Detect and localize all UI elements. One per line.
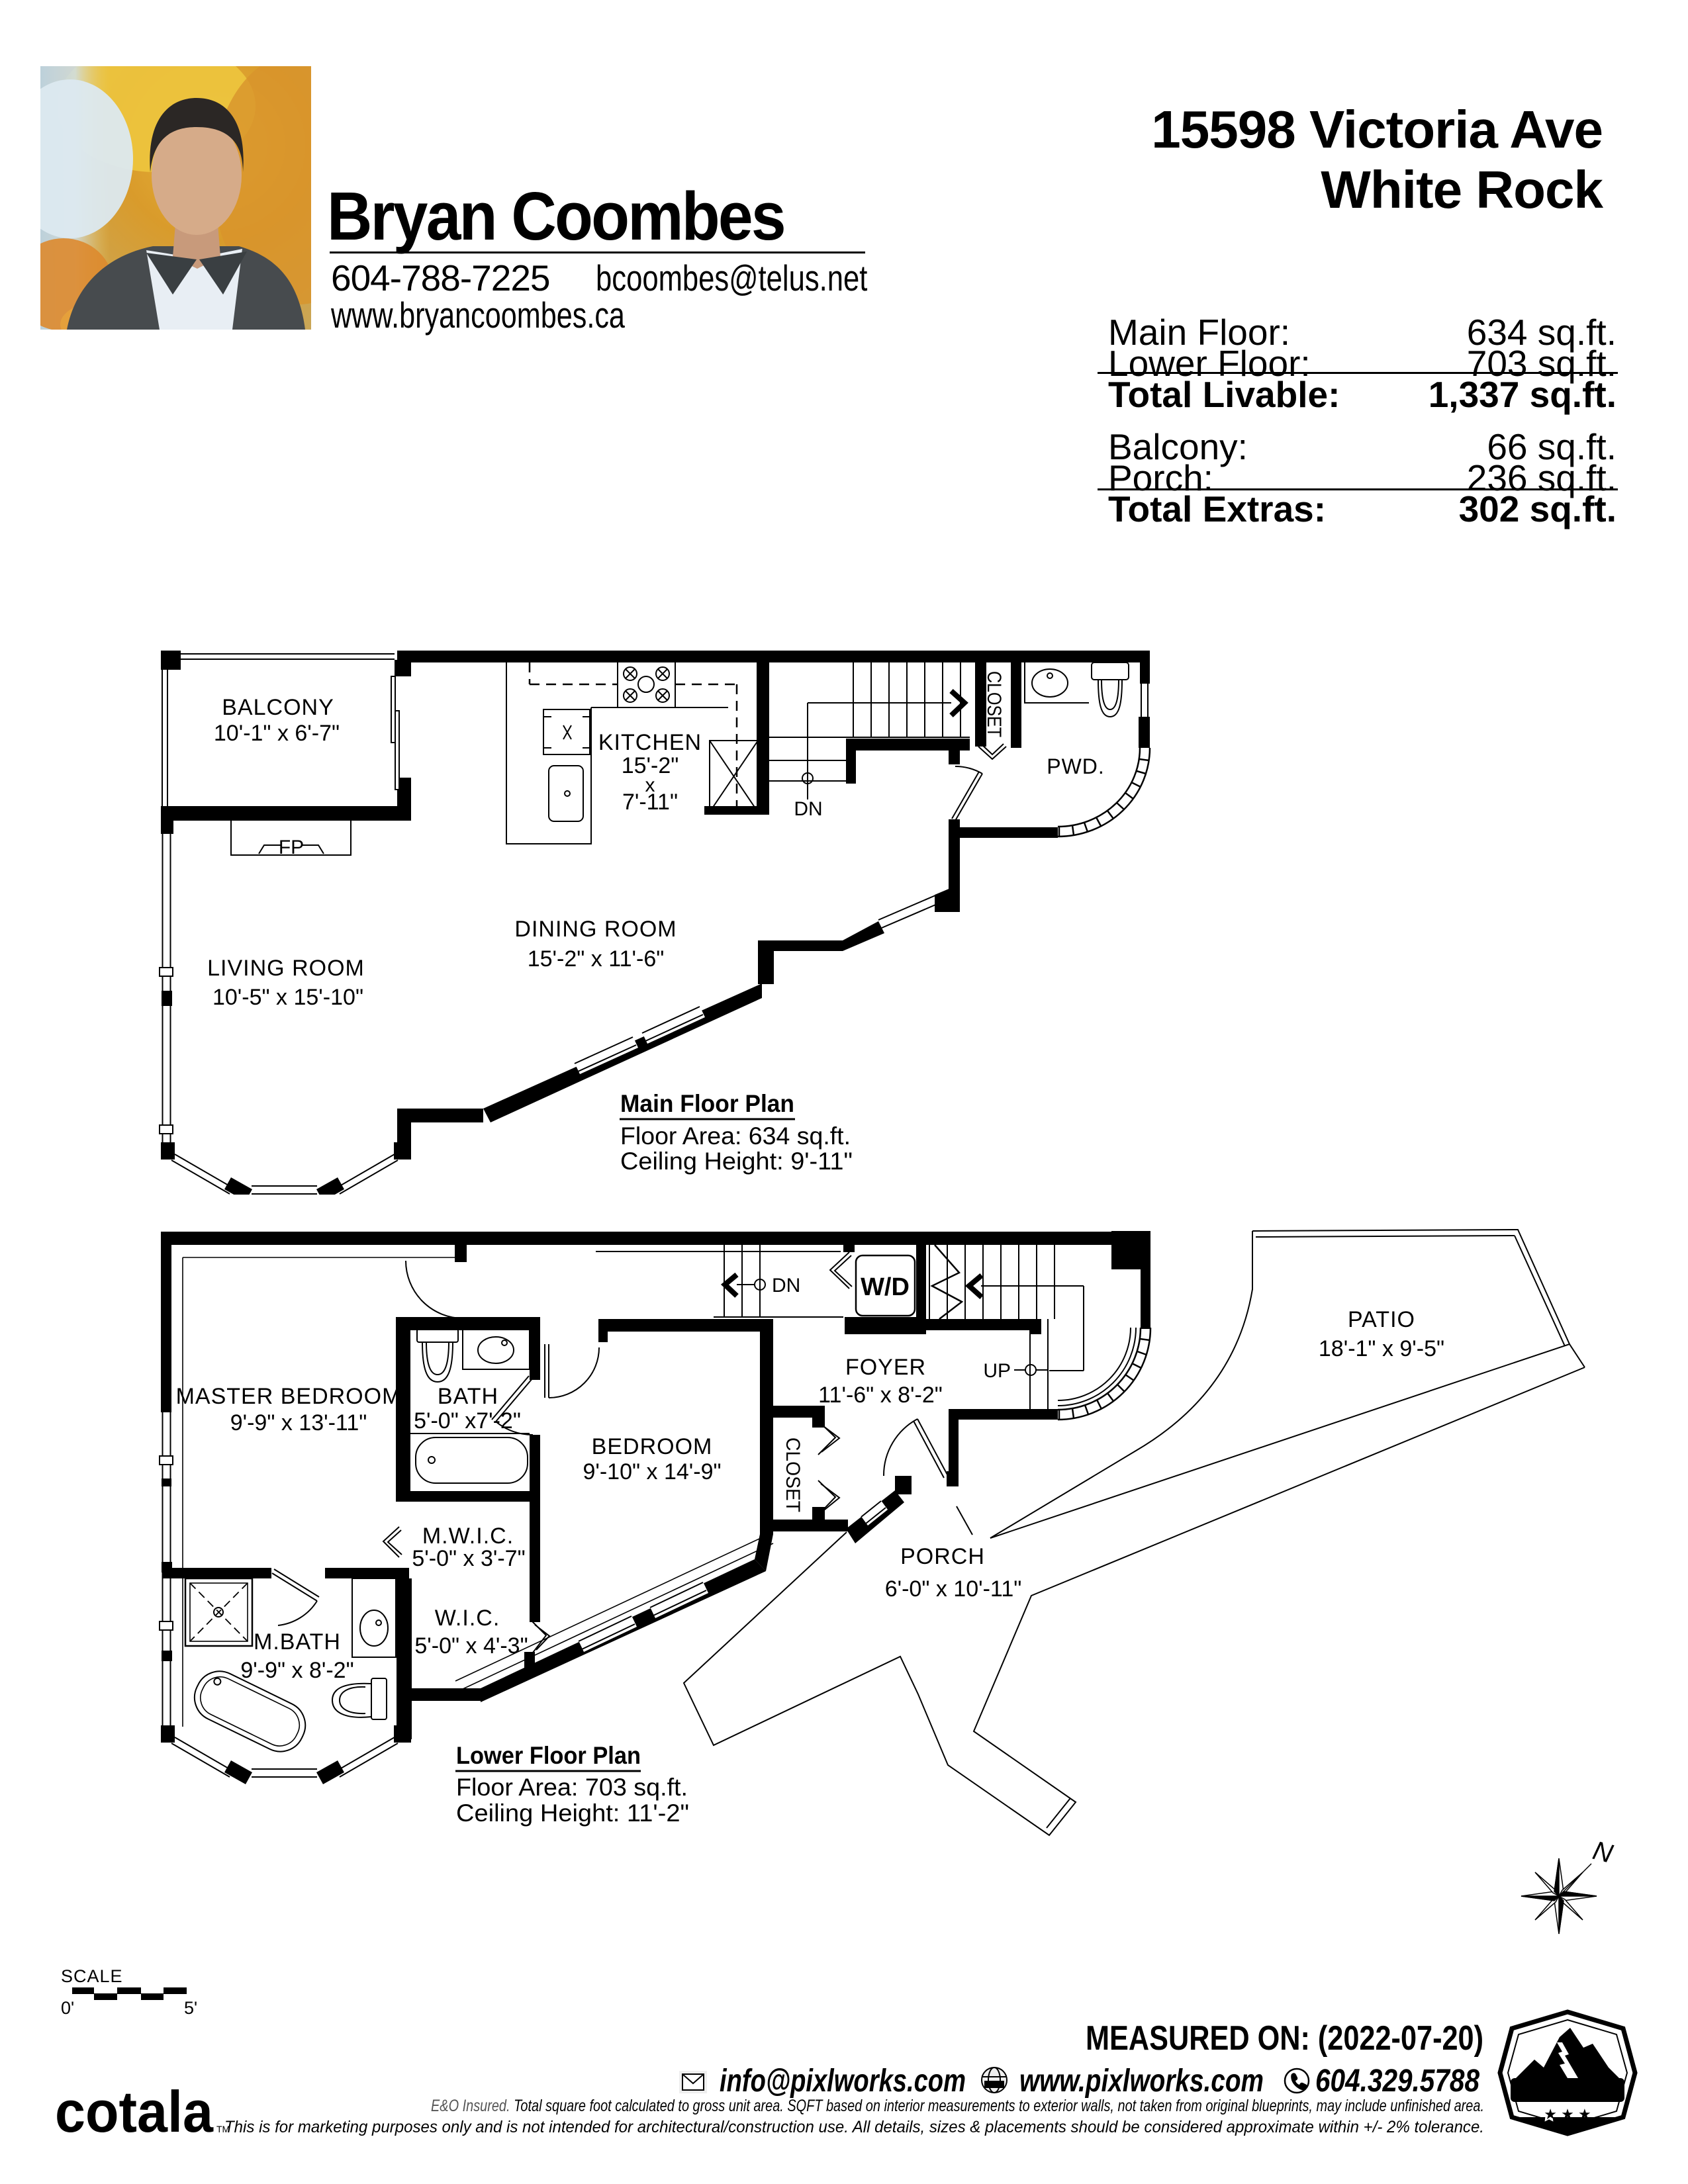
svg-text:Main Floor Plan: Main Floor Plan: [620, 1090, 794, 1117]
svg-text:PWD.: PWD.: [1047, 754, 1105, 778]
svg-text:DN: DN: [772, 1275, 800, 1297]
svg-text:www.pixlworks.com: www.pixlworks.com: [1019, 2064, 1264, 2099]
svg-text:FP: FP: [279, 837, 304, 858]
svg-text:Floor Area: 703 sq.ft.: Floor Area: 703 sq.ft.: [456, 1774, 688, 1801]
svg-text:5'-0" x 3'-7": 5'-0" x 3'-7": [412, 1546, 525, 1571]
svg-text:M.W.I.C.: M.W.I.C.: [422, 1524, 514, 1549]
svg-text:PATIO: PATIO: [1348, 1307, 1415, 1332]
svg-text:PixlWorks: PixlWorks: [1520, 2079, 1616, 2101]
svg-text:11'-6" x 8'-2": 11'-6" x 8'-2": [818, 1383, 943, 1408]
svg-text:9'-10" x 14'-9": 9'-10" x 14'-9": [583, 1459, 721, 1484]
svg-text:18'-1" x 9'-5": 18'-1" x 9'-5": [1319, 1336, 1444, 1361]
svg-text:★ ★ ★: ★ ★ ★: [1544, 2106, 1591, 2122]
svg-text:10'-5" x 15'-10": 10'-5" x 15'-10": [212, 985, 363, 1010]
svg-text:CLOSET: CLOSET: [983, 671, 1005, 737]
svg-text:9'-9" x 13'-11": 9'-9" x 13'-11": [230, 1410, 367, 1435]
svg-text:DINING ROOM: DINING ROOM: [514, 917, 677, 942]
svg-text:PORCH: PORCH: [900, 1544, 985, 1569]
svg-text:cotala: cotala: [55, 2079, 214, 2144]
svg-text:Floor Area: 634 sq.ft.: Floor Area: 634 sq.ft.: [620, 1122, 851, 1150]
svg-text:W/D: W/D: [861, 1273, 910, 1301]
svg-text:BALCONY: BALCONY: [222, 695, 334, 720]
svg-text:W.I.C.: W.I.C.: [435, 1606, 500, 1631]
svg-text:info@pixlworks.com: info@pixlworks.com: [720, 2064, 966, 2099]
svg-text:FOYER: FOYER: [845, 1355, 926, 1380]
svg-text:UP: UP: [983, 1360, 1011, 1382]
svg-text:WWW: WWW: [986, 2081, 1003, 2088]
svg-text:Lower Floor Plan: Lower Floor Plan: [456, 1742, 641, 1769]
svg-text:MASTER BEDROOM: MASTER BEDROOM: [176, 1384, 402, 1409]
svg-text:LIVING ROOM: LIVING ROOM: [207, 956, 365, 981]
svg-text:SCALE: SCALE: [61, 1966, 123, 1986]
svg-text:9'-9" x 8'-2": 9'-9" x 8'-2": [240, 1658, 353, 1683]
svg-text:6'-0" x 10'-11": 6'-0" x 10'-11": [885, 1576, 1022, 1602]
svg-text:KITCHEN: KITCHEN: [598, 730, 702, 755]
svg-text:BATH: BATH: [438, 1384, 498, 1409]
svg-text:DN: DN: [794, 798, 822, 820]
svg-text:604.329.5788: 604.329.5788: [1315, 2064, 1479, 2099]
svg-text:5'-0" x7'-2": 5'-0" x7'-2": [414, 1408, 521, 1433]
svg-text:0': 0': [61, 1998, 74, 2018]
svg-text:Ceiling Height: 9'-11": Ceiling Height: 9'-11": [620, 1148, 853, 1175]
svg-text:CLOSET: CLOSET: [782, 1437, 804, 1512]
svg-text:MEASURED ON: (2022-07-20): MEASURED ON: (2022-07-20): [1086, 2019, 1483, 2058]
svg-text:15'-2" x 11'-6": 15'-2" x 11'-6": [528, 946, 665, 972]
svg-text:7'-11": 7'-11": [622, 790, 678, 815]
svg-text:N: N: [1590, 1836, 1616, 1869]
svg-text:5': 5': [184, 1998, 197, 2018]
svg-text:E&O Insured. Total square foo: E&O Insured. Total square foot calculate…: [431, 2097, 1484, 2115]
svg-text:M.BATH: M.BATH: [254, 1629, 341, 1655]
svg-text:This is for marketing purposes: This is for marketing purposes only and …: [224, 2118, 1484, 2136]
svg-text:BEDROOM: BEDROOM: [592, 1434, 713, 1459]
svg-text:10'-1" x 6'-7": 10'-1" x 6'-7": [214, 721, 340, 746]
